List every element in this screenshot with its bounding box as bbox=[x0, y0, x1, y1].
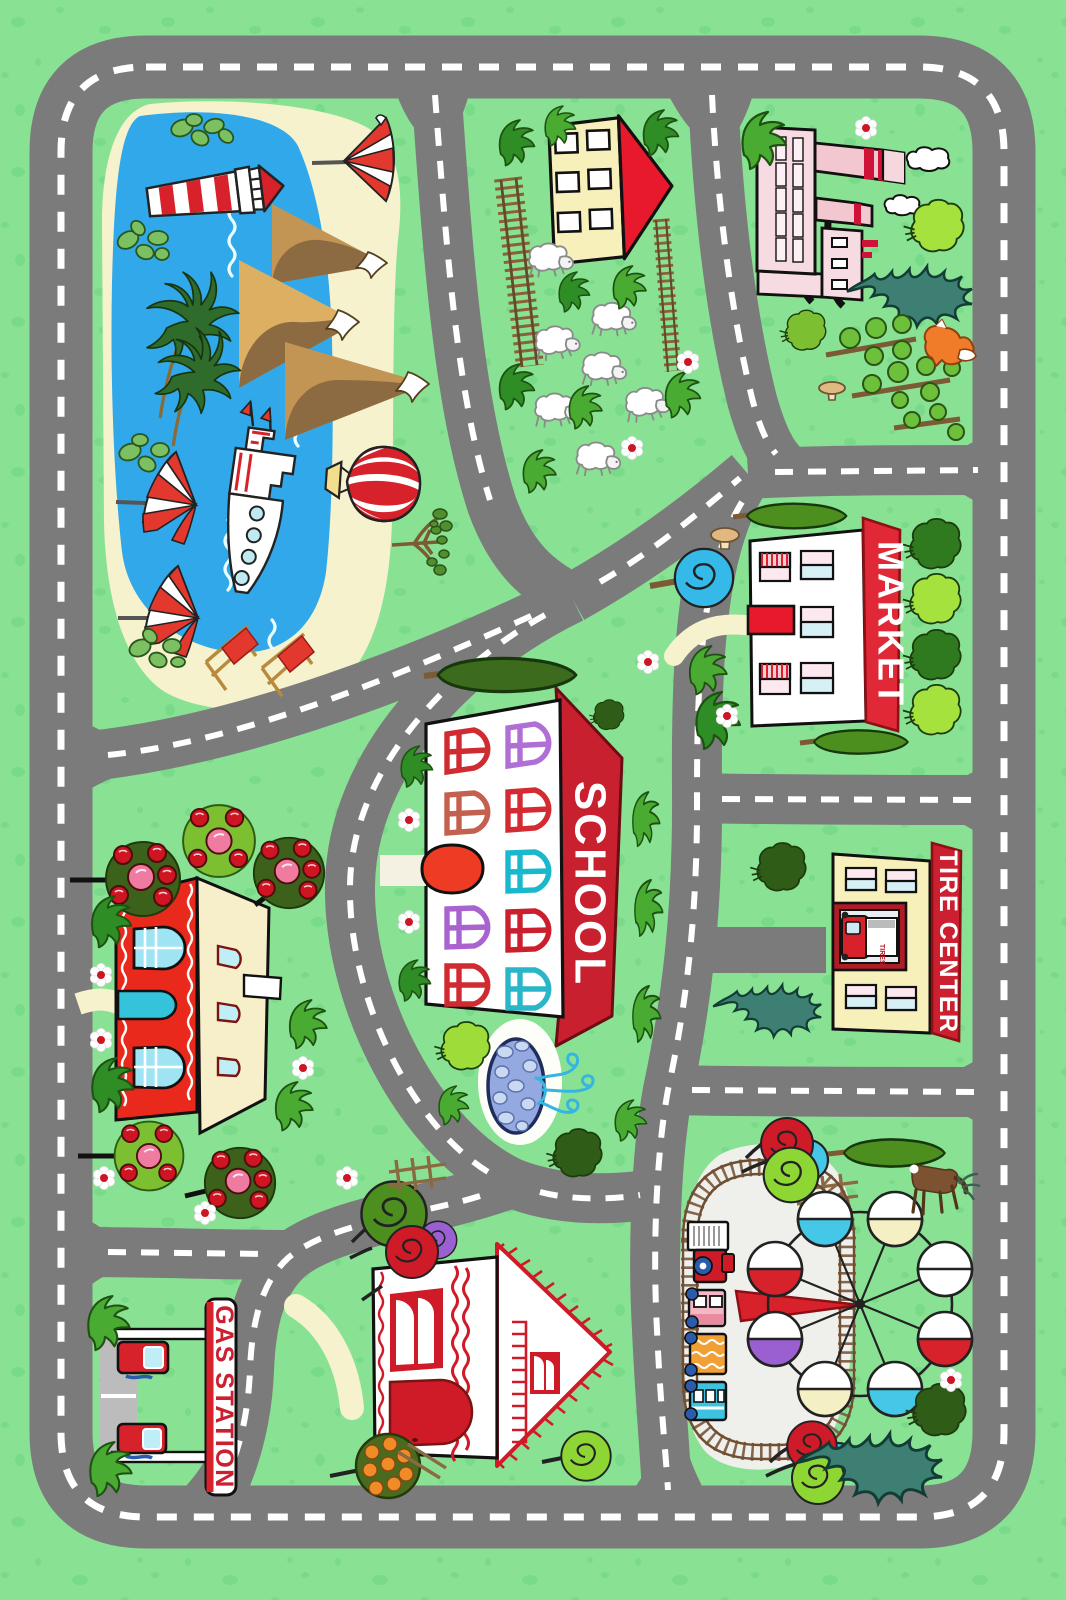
svg-text:SCHOOL: SCHOOL bbox=[566, 781, 615, 987]
svg-text:TIRE CENTER: TIRE CENTER bbox=[934, 850, 962, 1033]
svg-text:TIRES: TIRES bbox=[878, 944, 885, 965]
svg-text:GAS STATION: GAS STATION bbox=[210, 1305, 238, 1489]
svg-text:MARKET: MARKET bbox=[871, 541, 912, 707]
